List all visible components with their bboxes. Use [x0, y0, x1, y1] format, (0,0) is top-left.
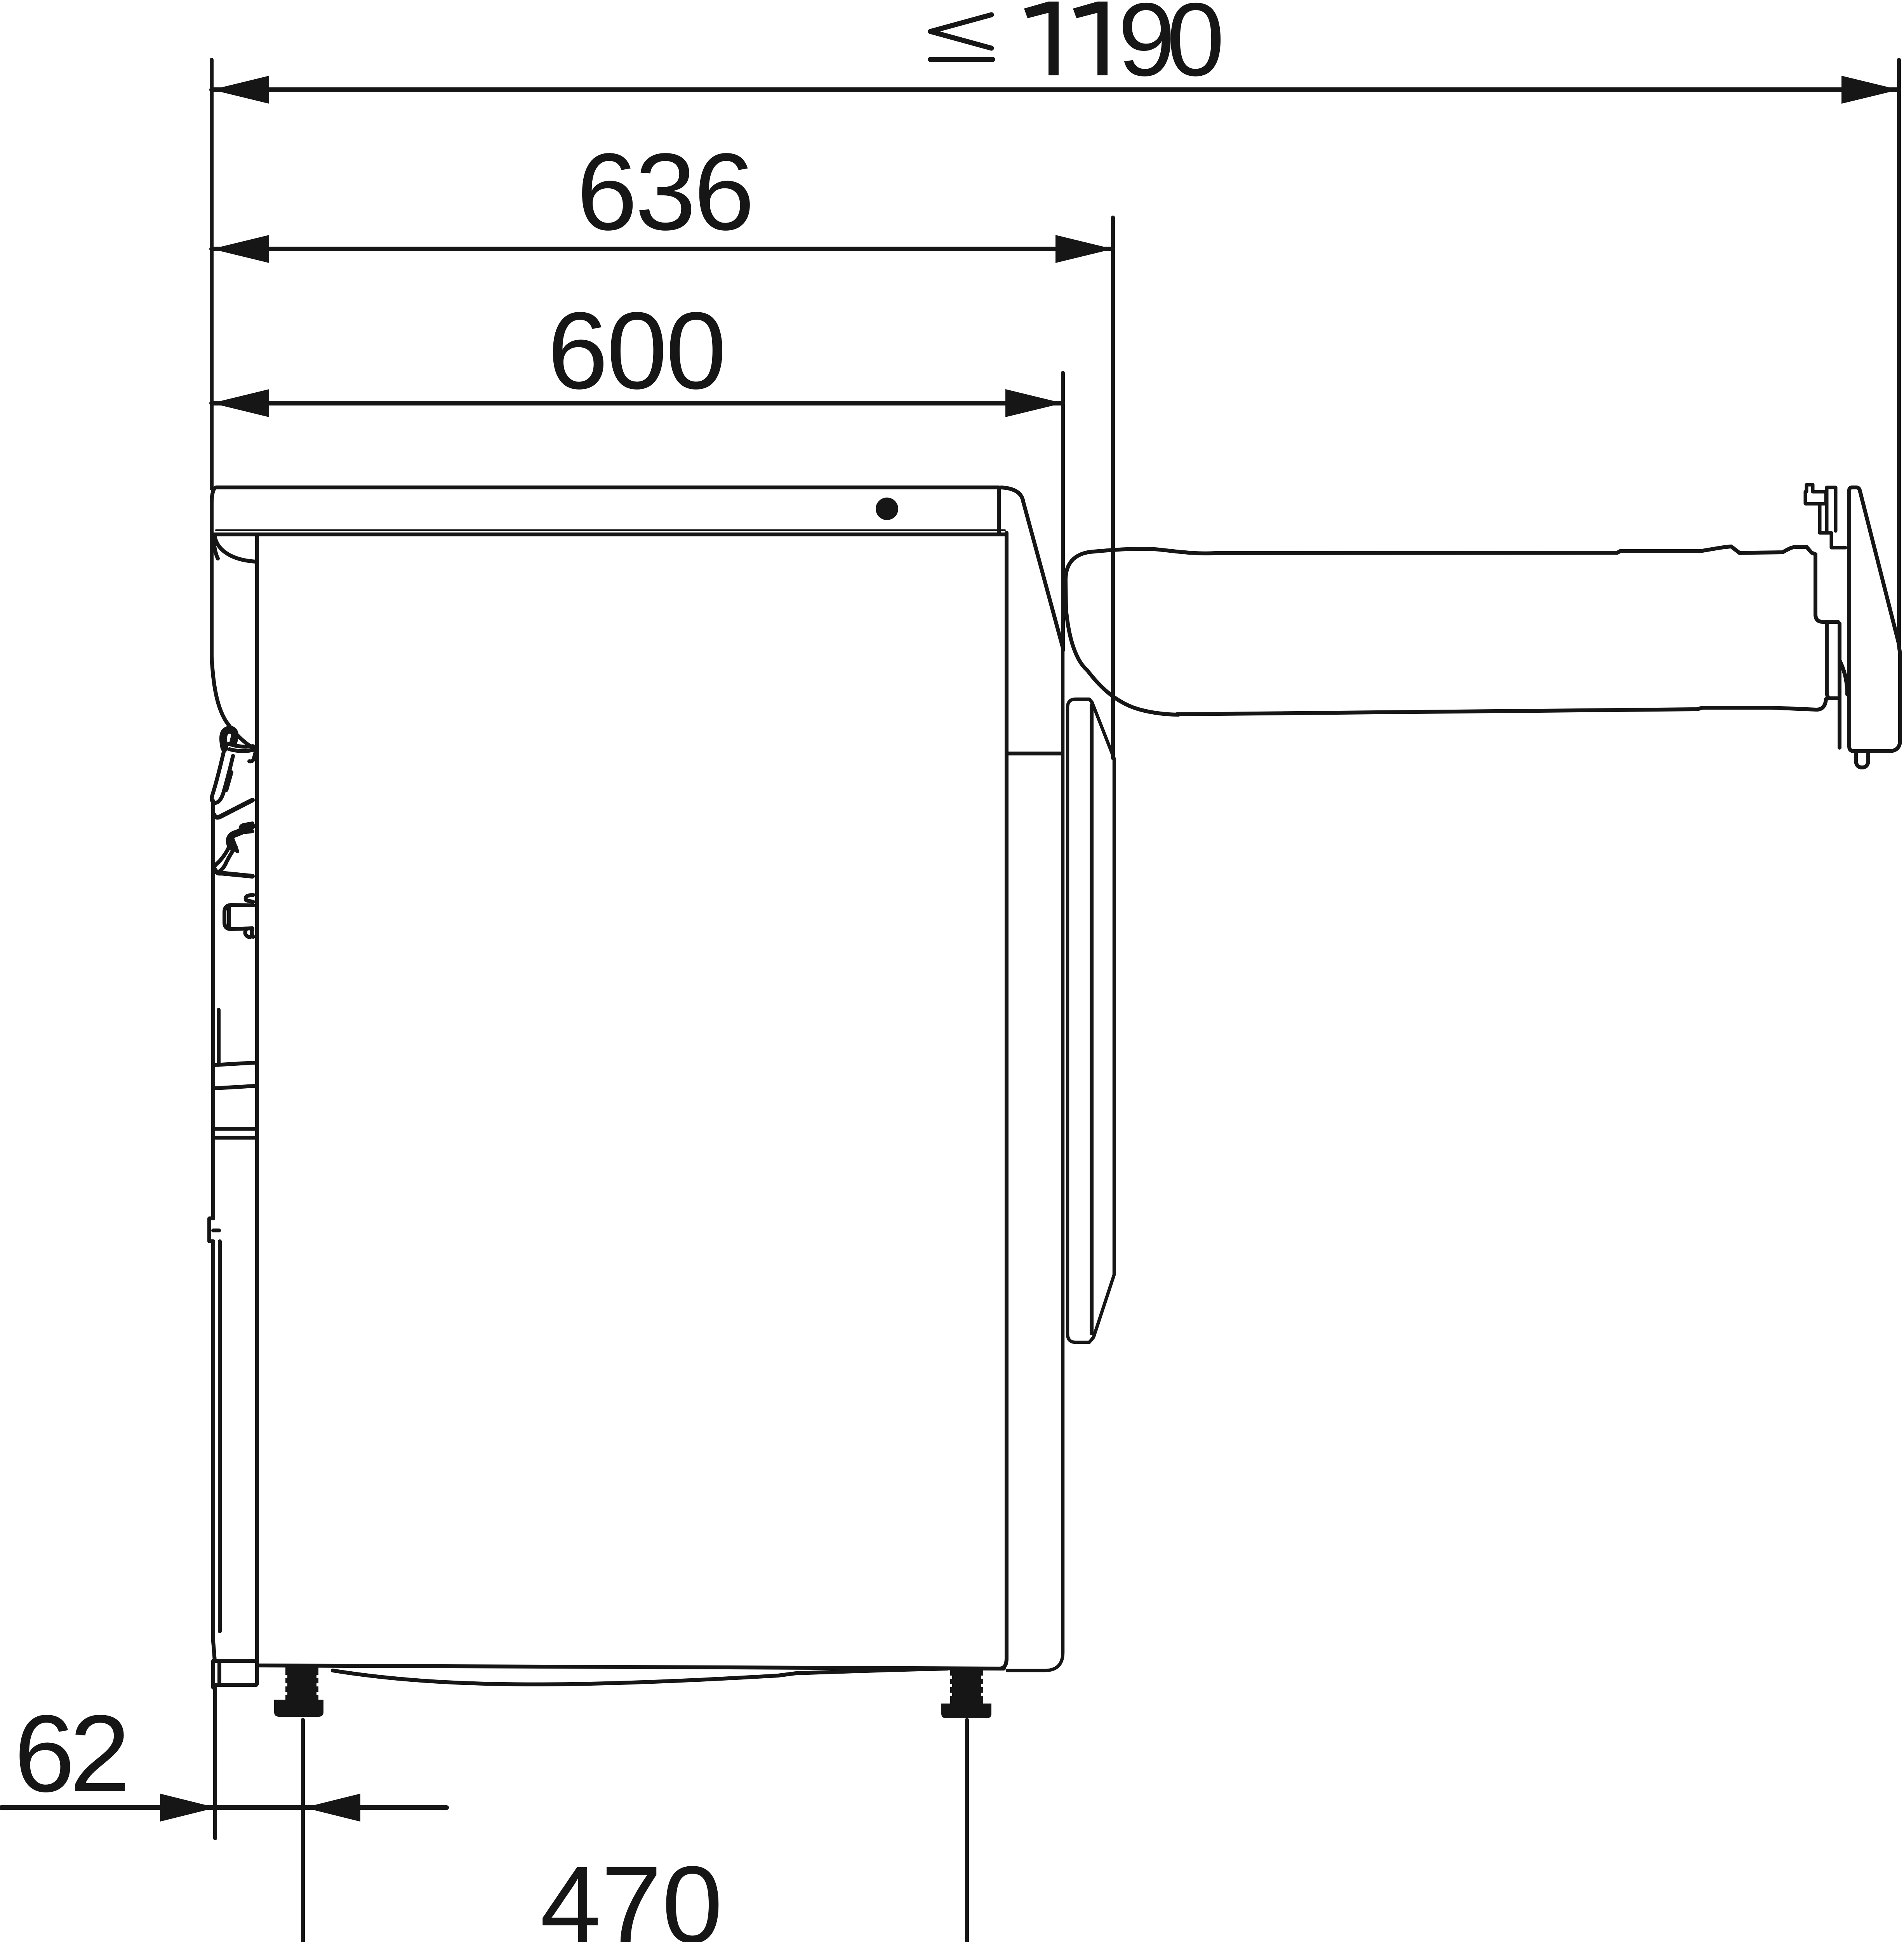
svg-text:0: 0 — [1167, 0, 1224, 97]
svg-text:600: 600 — [547, 289, 725, 412]
svg-text:62: 62 — [14, 1692, 126, 1815]
svg-text:470: 470 — [540, 1843, 723, 1942]
svg-text:636: 636 — [577, 131, 753, 253]
